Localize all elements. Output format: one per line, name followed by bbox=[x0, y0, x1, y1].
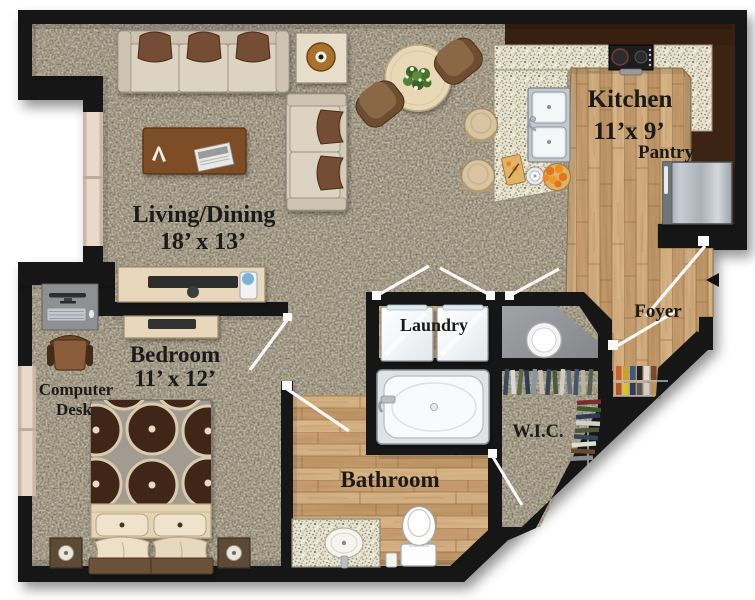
svg-text:Bedroom: Bedroom bbox=[130, 342, 220, 367]
svg-text:11’x 9’: 11’x 9’ bbox=[593, 118, 665, 145]
svg-text:Laundry: Laundry bbox=[400, 315, 468, 335]
svg-text:Kitchen: Kitchen bbox=[588, 86, 673, 113]
svg-text:W.I.C.: W.I.C. bbox=[512, 422, 563, 442]
svg-text:18’ x 13’: 18’ x 13’ bbox=[160, 229, 246, 255]
svg-text:Living/Dining: Living/Dining bbox=[133, 202, 276, 228]
svg-text:Computer: Computer bbox=[39, 380, 114, 399]
svg-text:Foyer: Foyer bbox=[634, 301, 682, 322]
svg-text:11’ x 12’: 11’ x 12’ bbox=[134, 366, 215, 391]
svg-text:Bathroom: Bathroom bbox=[340, 467, 439, 492]
svg-text:Desk: Desk bbox=[56, 400, 92, 419]
svg-text:Pantry: Pantry bbox=[638, 142, 694, 163]
